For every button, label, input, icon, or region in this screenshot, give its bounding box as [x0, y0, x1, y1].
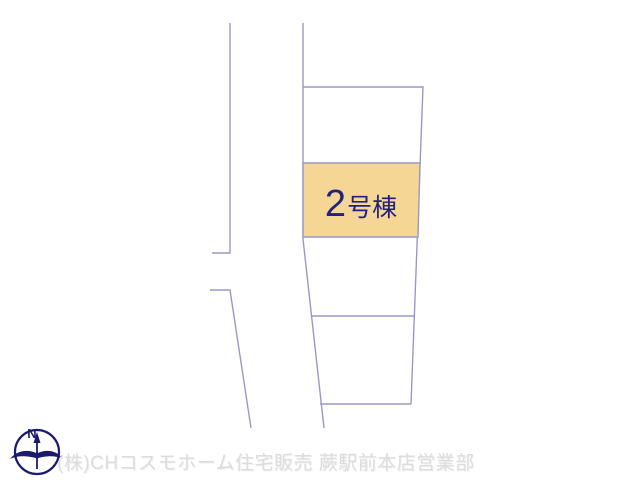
lot-2-suffix: 号棟 [347, 196, 397, 221]
road-edge-upper-line [212, 23, 230, 253]
road-edge-lower-line [210, 290, 251, 428]
site-plan-drawing [0, 0, 640, 480]
lot-north-east-boundary-line [303, 87, 423, 404]
watermark-text: (株)CHコスモホーム住宅販売 蕨駅前本店営業部 [57, 448, 475, 475]
site-plan-image: 2号棟 N (株)CHコスモホーム住宅販売 蕨駅前本店営業部 [0, 0, 640, 480]
lot-2-number: 2 [325, 185, 347, 223]
lot-2-label: 2号棟 [303, 163, 419, 237]
